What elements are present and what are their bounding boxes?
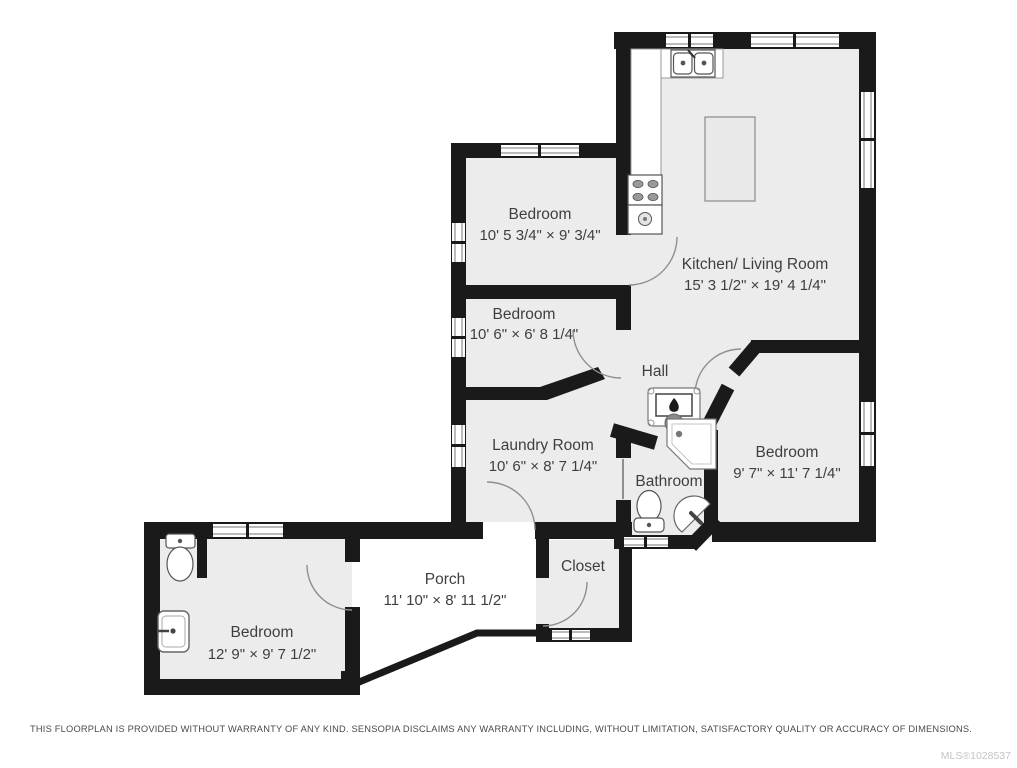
window-icon [501, 145, 579, 156]
room-label-bedroom-mid: Bedroom [493, 306, 556, 323]
disclaimer-text: THIS FLOORPLAN IS PROVIDED WITHOUT WARRA… [30, 724, 972, 734]
stove-icon [628, 175, 662, 234]
door-opening [483, 522, 535, 539]
kitchen-island-icon [705, 117, 755, 201]
room-dims-laundry: 10' 6" × 8' 7 1/4" [489, 458, 598, 475]
window-icon [552, 630, 590, 640]
window-icon [452, 223, 465, 262]
window-icon [861, 92, 874, 188]
room-label-bedroom-right: Bedroom [756, 444, 819, 461]
floorplan-page: Bedroom 10' 5 3/4" × 9' 3/4" Kitchen/ Li… [0, 0, 1017, 768]
room-bedroom-right-floor [704, 340, 876, 540]
room-dims-bedroom-bl: 12' 9" × 9' 7 1/2" [208, 646, 317, 663]
window-icon [452, 318, 465, 357]
mls-number: MLS®1028537 [941, 750, 1011, 762]
window-icon [624, 537, 668, 547]
toilet-icon [166, 534, 195, 581]
floorplan-canvas: Bedroom 10' 5 3/4" × 9' 3/4" Kitchen/ Li… [0, 0, 1017, 768]
room-dims-kitchen-living: 15' 3 1/2" × 19' 4 1/4" [684, 277, 826, 294]
window-icon [666, 34, 713, 47]
room-label-hall: Hall [642, 363, 669, 380]
room-label-kitchen-living: Kitchen/ Living Room [682, 256, 828, 273]
room-dims-bedroom-right: 9' 7" × 11' 7 1/4" [733, 465, 840, 482]
room-label-bedroom-top-left: Bedroom [509, 206, 572, 223]
room-porch-floor [352, 539, 536, 685]
room-dims-bedroom-top-left: 10' 5 3/4" × 9' 3/4" [479, 227, 600, 244]
window-icon [452, 425, 465, 467]
room-label-porch: Porch [425, 571, 466, 588]
room-label-laundry: Laundry Room [492, 437, 594, 454]
room-label-closet: Closet [561, 558, 606, 575]
room-dims-porch: 11' 10" × 8' 11 1/2" [384, 592, 507, 609]
room-dims-bedroom-mid: 10' 6" × 6' 8 1/4" [470, 326, 579, 343]
vanity-sink-icon [158, 611, 189, 652]
double-sink-icon [671, 50, 715, 77]
window-icon [751, 34, 839, 47]
window-icon [861, 402, 874, 466]
room-label-bedroom-bl: Bedroom [231, 624, 294, 641]
room-label-bathroom: Bathroom [635, 473, 702, 490]
room-closet-floor [536, 540, 632, 642]
window-icon [213, 524, 283, 537]
